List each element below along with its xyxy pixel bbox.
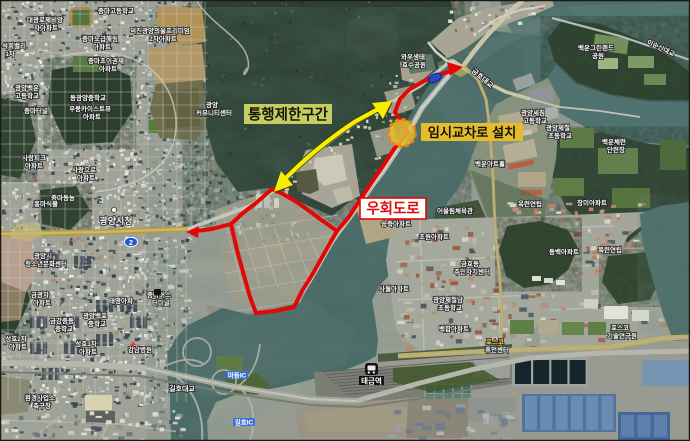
svg-text:임시교차로 설치: 임시교차로 설치	[428, 125, 517, 140]
svg-text:아파트: 아파트	[99, 64, 117, 73]
svg-text:휴먼센터: 휴먼센터	[485, 345, 509, 354]
svg-text:금강중동: 금강중동	[50, 316, 74, 325]
svg-text:덕진광양의울프리미엄: 덕진광양의울프리미엄	[130, 26, 190, 35]
svg-text:아파트: 아파트	[9, 342, 27, 351]
svg-text:성호2차: 성호2차	[5, 334, 27, 343]
svg-text:사랑으로: 사랑으로	[72, 165, 96, 174]
svg-text:어울림체육관: 어울림체육관	[437, 206, 473, 215]
svg-text:초등학교: 초등학교	[438, 303, 462, 312]
svg-text:아파트: 아파트	[25, 161, 43, 170]
svg-text:와우생태: 와우생태	[401, 52, 425, 61]
svg-text:목련연립: 목련연립	[598, 245, 622, 254]
svg-text:대광로제비앙: 대광로제비앙	[27, 15, 63, 24]
svg-text:중마고등학교: 중마고등학교	[98, 6, 134, 15]
svg-text:고등학교: 고등학교	[15, 91, 39, 100]
svg-text:2: 2	[129, 238, 133, 247]
svg-text:사월아파트: 사월아파트	[379, 284, 409, 293]
svg-text:마동IC: 마동IC	[228, 371, 247, 380]
svg-text:터미널: 터미널	[152, 298, 170, 307]
svg-text:✚: ✚	[130, 341, 136, 349]
svg-text:포스코: 포스코	[611, 324, 629, 332]
svg-text:태금역: 태금역	[361, 376, 382, 386]
svg-text:길호IC: 길호IC	[235, 418, 254, 427]
svg-text:공원: 공원	[592, 51, 604, 60]
svg-text:금호동: 금호동	[461, 259, 479, 268]
svg-text:성호3차: 성호3차	[75, 339, 97, 348]
svg-text:아파트: 아파트	[79, 347, 97, 356]
svg-text:기술연구원: 기술연구원	[607, 331, 637, 340]
svg-text:포스코: 포스코	[486, 338, 504, 346]
svg-text:중마터널: 중마터널	[24, 106, 48, 115]
svg-text:중학교: 중학교	[55, 324, 73, 333]
svg-text:길호대교: 길호대교	[169, 384, 195, 393]
svg-text:자아파트: 자아파트	[34, 23, 58, 32]
svg-text:축구장: 축구장	[33, 401, 51, 410]
svg-text:금광차: 금광차	[31, 290, 49, 299]
svg-text:단련장: 단련장	[607, 145, 625, 154]
svg-text:호수공원: 호수공원	[402, 60, 426, 69]
svg-text:광양백운: 광양백운	[15, 83, 39, 92]
svg-text:광양제철: 광양제철	[546, 123, 570, 132]
svg-text:중마노급해링: 중마노급해링	[82, 34, 118, 43]
svg-text:환경사업소: 환경사업소	[25, 393, 55, 402]
svg-text:아파트: 아파트	[83, 112, 101, 121]
svg-text:중학교: 중학교	[88, 319, 106, 328]
svg-text:태영아파: 태영아파	[109, 296, 133, 305]
svg-text:1차: 1차	[5, 49, 15, 58]
svg-text:우봉카이스트뷰: 우봉카이스트뷰	[69, 104, 111, 113]
svg-text:아파트: 아파트	[93, 42, 111, 51]
svg-text:초등학교: 초등학교	[548, 131, 572, 140]
svg-text:주민자치센터: 주민자치센터	[454, 267, 490, 276]
svg-text:우회도로: 우회도로	[366, 201, 419, 218]
svg-text:광양제철남: 광양제철남	[433, 295, 463, 304]
svg-text:옥련연립: 옥련연립	[518, 199, 542, 208]
svg-text:백운그린랜드: 백운그린랜드	[578, 43, 614, 52]
svg-text:사랑피크: 사랑피크	[22, 153, 46, 162]
svg-text:2차아파트: 2차아파트	[149, 34, 177, 43]
svg-text:초원아파트: 초원아파트	[419, 232, 449, 241]
svg-text:백운체련: 백운체련	[602, 137, 626, 146]
svg-text:동광양중학교: 동광양중학교	[70, 93, 106, 102]
svg-text:홍마식물: 홍마식물	[34, 199, 58, 208]
svg-text:통행제한구간: 통행제한구간	[248, 107, 329, 124]
svg-text:고등학교: 고등학교	[523, 116, 547, 125]
svg-text:광양시: 광양시	[34, 251, 52, 260]
svg-text:커뮤니티센터: 커뮤니티센터	[196, 108, 232, 117]
svg-text:중마초이권재: 중마초이권재	[88, 56, 124, 65]
svg-text:동백아파트: 동백아파트	[549, 247, 579, 256]
svg-text:백합아파트: 백합아파트	[439, 324, 469, 333]
svg-text:백운아트홀: 백운아트홀	[475, 159, 505, 168]
svg-text:아파트: 아파트	[33, 298, 51, 307]
svg-text:장미아파트: 장미아파트	[577, 198, 607, 207]
svg-text:광양: 광양	[206, 100, 218, 109]
svg-text:아파트: 아파트	[77, 173, 95, 182]
svg-text:석희밸리: 석희밸리	[2, 41, 26, 50]
svg-text:광양시청: 광양시청	[99, 215, 132, 226]
svg-text:청소년문화센터: 청소년문화센터	[25, 259, 67, 268]
svg-text:송죽아파트: 송죽아파트	[381, 219, 411, 228]
svg-text:광양세침: 광양세침	[521, 108, 545, 117]
svg-text:광양백포: 광양백포	[83, 311, 107, 320]
